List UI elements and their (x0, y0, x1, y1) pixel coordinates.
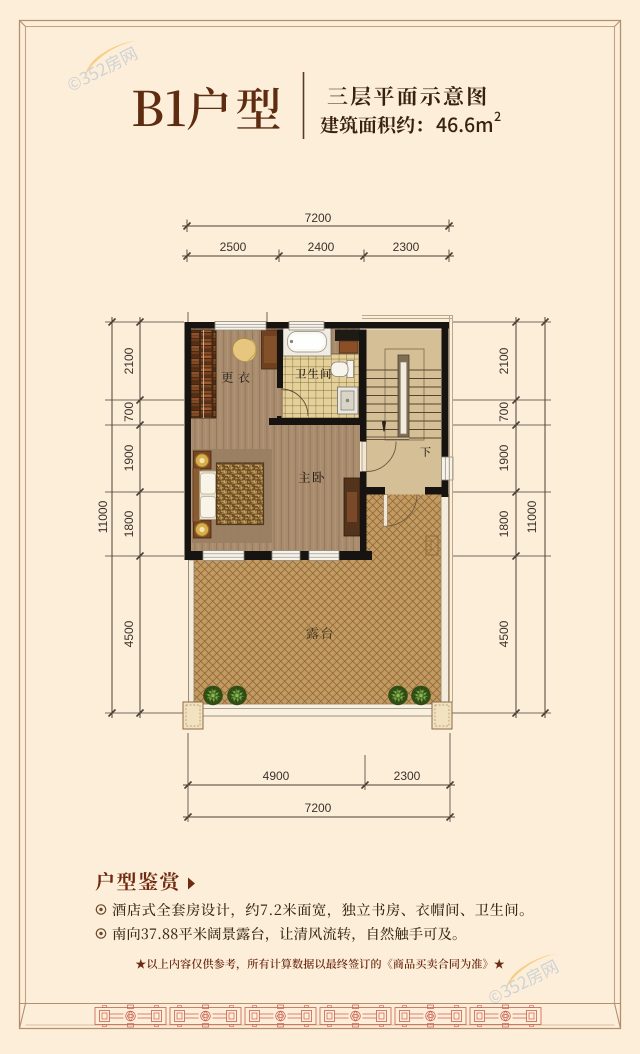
svg-text:2100: 2100 (122, 347, 136, 374)
svg-text:7200: 7200 (305, 211, 332, 225)
svg-text:11000: 11000 (525, 500, 539, 533)
svg-text:700: 700 (497, 402, 511, 422)
svg-text:2300: 2300 (394, 769, 421, 783)
svg-text:7200: 7200 (305, 801, 332, 815)
svg-text:2100: 2100 (497, 347, 511, 374)
svg-text:11000: 11000 (96, 500, 110, 533)
svg-text:4900: 4900 (263, 769, 290, 783)
svg-text:4500: 4500 (122, 620, 136, 647)
svg-text:2300: 2300 (393, 240, 420, 254)
svg-text:1800: 1800 (122, 510, 136, 537)
svg-text:700: 700 (122, 402, 136, 422)
svg-text:2500: 2500 (220, 240, 247, 254)
svg-text:2400: 2400 (308, 240, 335, 254)
svg-text:1900: 1900 (122, 444, 136, 471)
svg-text:4500: 4500 (497, 620, 511, 647)
svg-text:1800: 1800 (497, 510, 511, 537)
svg-text:1900: 1900 (497, 444, 511, 471)
